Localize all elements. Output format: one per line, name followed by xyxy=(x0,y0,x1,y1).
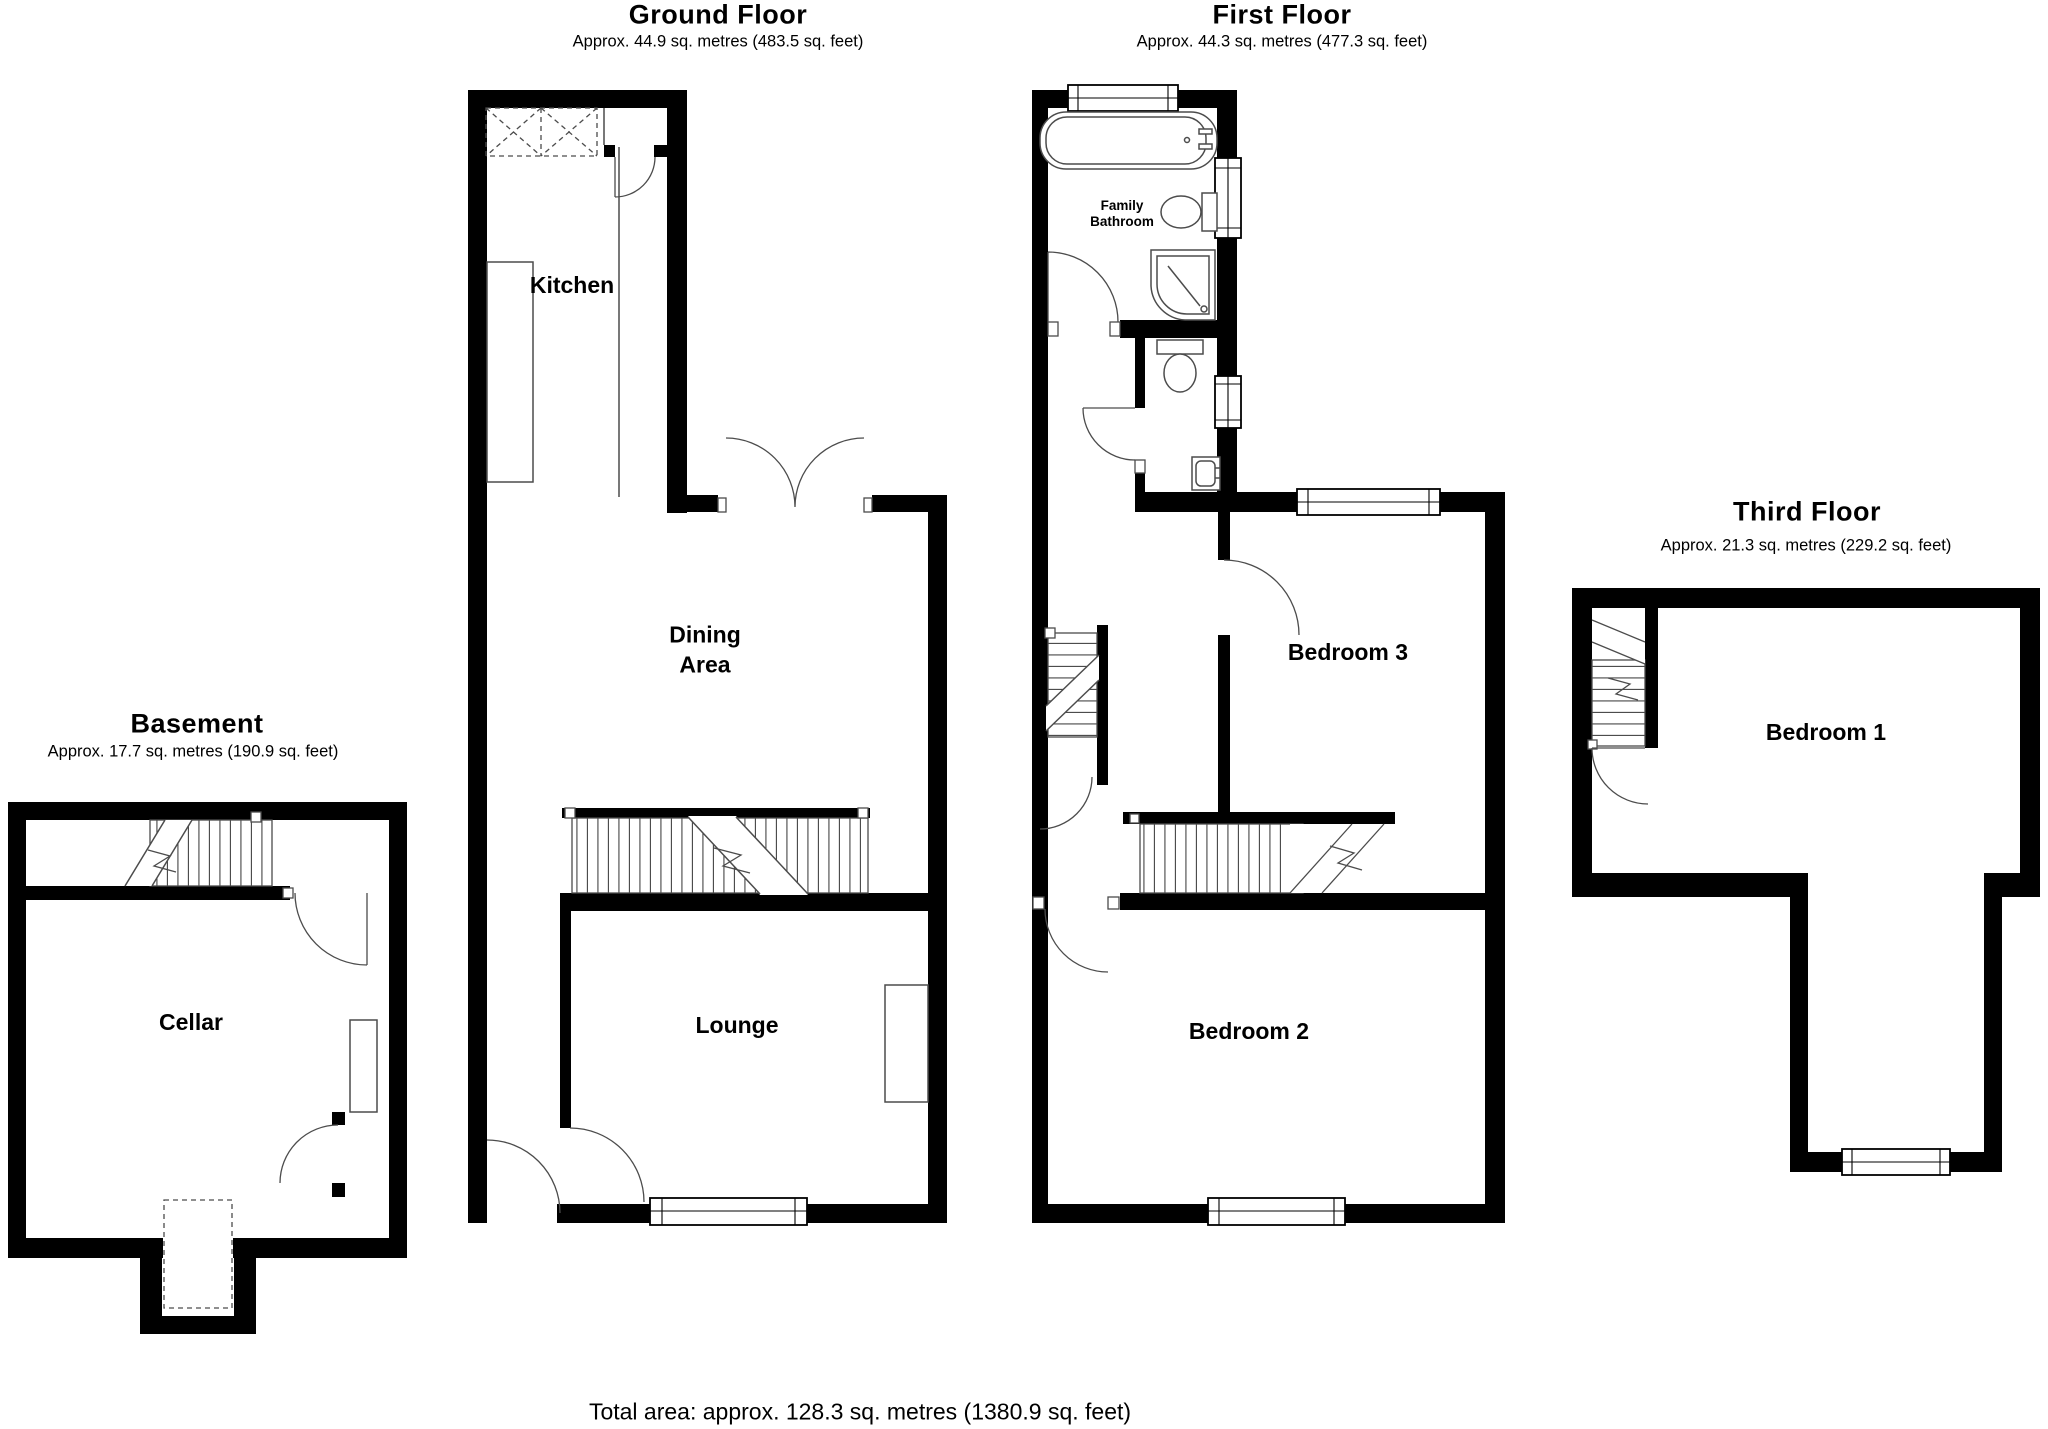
room-label-kitchen: Kitchen xyxy=(530,270,614,300)
gf-kitchen-units xyxy=(486,108,597,156)
room-label-bedroom-1: Bedroom 1 xyxy=(1766,717,1886,747)
basement-title: Basement xyxy=(130,709,263,740)
ff-bath-fixture xyxy=(1040,112,1217,169)
bs-cupboard xyxy=(350,1020,377,1112)
gf-kitchen-counter xyxy=(487,262,533,482)
floorplan-drawing xyxy=(0,0,2048,1429)
dining-line-2: Area xyxy=(669,650,741,680)
first-floor-subtitle: Approx. 44.3 sq. metres (477.3 sq. feet) xyxy=(1137,33,1428,52)
room-label-bedroom-2: Bedroom 2 xyxy=(1189,1016,1309,1046)
first-floor-title: First Floor xyxy=(1213,0,1352,31)
bathroom-line-1: Family xyxy=(1090,198,1154,214)
ground-floor-title: Ground Floor xyxy=(629,0,807,31)
bathroom-line-2: Bathroom xyxy=(1090,214,1154,230)
bs-stairs xyxy=(125,812,272,886)
total-area-text: Total area: approx. 128.3 sq. metres (13… xyxy=(589,1399,1131,1426)
dining-line-1: Dining xyxy=(669,620,741,650)
tf-stairs xyxy=(1588,608,1645,749)
gf-stairs xyxy=(565,808,868,895)
ff-wc-toilet xyxy=(1157,340,1203,392)
room-label-family-bathroom: Family Bathroom xyxy=(1090,198,1154,230)
third-floor-plan xyxy=(1572,588,2040,1175)
ff-lower-stairs xyxy=(1130,814,1395,893)
bs-hatch-dashed xyxy=(164,1200,232,1308)
room-label-lounge: Lounge xyxy=(695,1010,778,1040)
ff-shower xyxy=(1151,250,1215,320)
room-label-bedroom-3: Bedroom 3 xyxy=(1288,637,1408,667)
tf-doors xyxy=(1592,748,1648,804)
first-floor-plan xyxy=(1032,85,1505,1225)
room-label-cellar: Cellar xyxy=(159,1007,223,1037)
ground-floor-subtitle: Approx. 44.9 sq. metres (483.5 sq. feet) xyxy=(573,33,864,52)
floorplan-page: Ground Floor Approx. 44.9 sq. metres (48… xyxy=(0,0,2048,1429)
gf-lounge-window xyxy=(650,1198,807,1225)
third-floor-title: Third Floor xyxy=(1733,497,1881,528)
ff-bathroom-toilet xyxy=(1161,193,1217,231)
ff-wc-sink xyxy=(1192,457,1220,490)
basement-plan xyxy=(8,802,407,1334)
gf-french-doors xyxy=(718,438,872,512)
gf-corridor-line xyxy=(604,108,619,497)
room-label-dining-area: Dining Area xyxy=(669,620,741,681)
basement-subtitle: Approx. 17.7 sq. metres (190.9 sq. feet) xyxy=(48,743,339,762)
ff-walls xyxy=(1032,90,1505,1223)
tf-window xyxy=(1842,1149,1950,1175)
ff-upper-stairs xyxy=(1045,628,1099,737)
third-floor-subtitle: Approx. 21.3 sq. metres (229.2 sq. feet) xyxy=(1661,537,1952,556)
gf-chimney-breast xyxy=(885,985,928,1102)
